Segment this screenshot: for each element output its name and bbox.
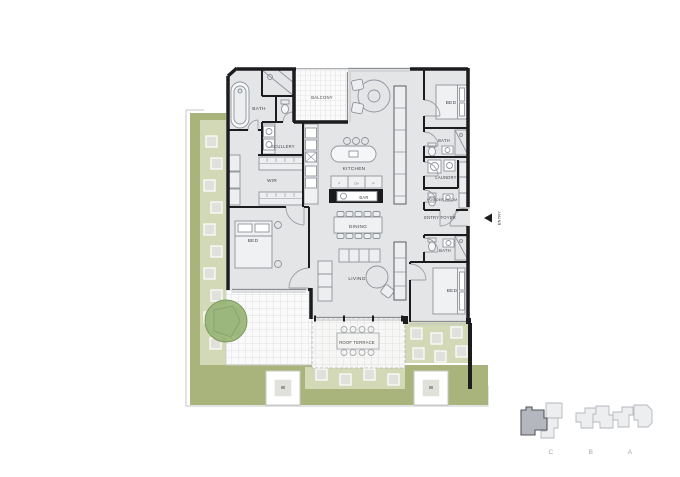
planter-box-left	[266, 371, 300, 405]
keyplan-letter-a: A	[628, 449, 633, 456]
entry-label: ENTRY	[498, 211, 502, 225]
keyplan-building-a	[613, 405, 652, 427]
room-label-living: LIVING	[348, 276, 365, 282]
wall-nub	[403, 316, 408, 324]
room-label-bed-left: BED	[248, 238, 259, 244]
room-label-bed-bottom-right: BED	[447, 288, 458, 294]
wall-nub	[466, 318, 471, 324]
planter-box-right	[414, 371, 448, 405]
room-label-bed-top-right: BED	[446, 100, 457, 106]
corridor-storage	[394, 86, 406, 300]
room-label-balcony: BALCONY	[311, 95, 332, 100]
room-label-kitchen: KITCHEN	[343, 166, 366, 172]
keyplan: C B A	[521, 403, 652, 456]
room-label-bath-main: BATH	[252, 106, 266, 112]
bathtub	[231, 82, 249, 128]
room-label-bath-lower-right: BATH	[439, 248, 451, 253]
room-label-scullery: SCULLERY	[271, 144, 295, 149]
room-label-roof-terrace: ROOF TERRACE	[339, 340, 375, 345]
room-label-bath-right: BATH	[438, 138, 450, 143]
appliance-label-fridge: F	[339, 182, 341, 186]
keyplan-building-b	[576, 406, 613, 428]
bar-label: BAR	[359, 195, 368, 200]
kitchen-counter	[304, 124, 318, 204]
tree	[205, 300, 247, 342]
room-label-laundry: LAUNDRY	[435, 175, 456, 180]
entry-arrow-icon	[484, 214, 492, 223]
appliance-label-pantry: P	[372, 182, 374, 186]
scullery-sinks	[262, 124, 275, 154]
room-label-powder-room: POWDER ROOM	[427, 198, 458, 202]
bar-counter	[329, 189, 383, 203]
floor-plan: BATH BALCONY BED SCULLERY KITCHEN WIR BA…	[0, 0, 680, 477]
appliance-label-oven: OV	[354, 182, 359, 186]
wc-fixture	[281, 100, 289, 114]
keyplan-letter-c: C	[549, 449, 554, 456]
room-label-dining: DINING	[349, 224, 367, 230]
room-label-wir: WIR	[267, 178, 277, 184]
entry-marker: ENTRY	[484, 211, 502, 225]
keyplan-building-c	[521, 403, 562, 438]
floor-plan-page: BATH BALCONY BED SCULLERY KITCHEN WIR BA…	[0, 0, 680, 477]
room-label-entry-foyer: ENTRY FOYER	[424, 215, 456, 220]
keyplan-letters: C B A	[549, 449, 633, 456]
keyplan-letter-b: B	[589, 449, 594, 456]
